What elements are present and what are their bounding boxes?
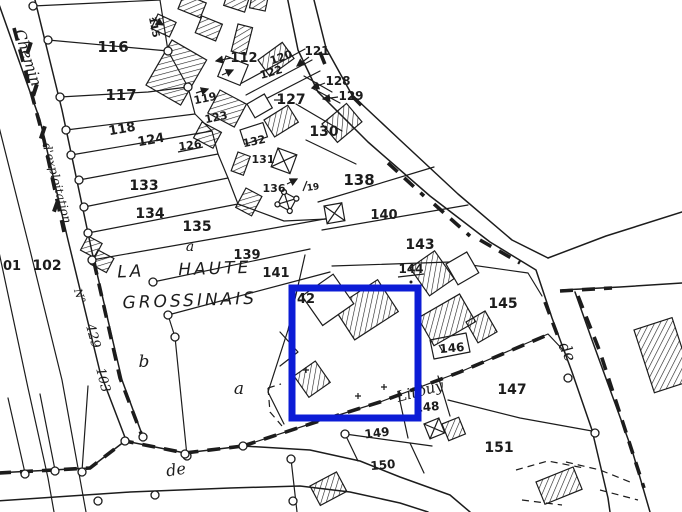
road-label-numero: N° xyxy=(71,286,88,305)
parcel-label-133: 133 xyxy=(129,178,158,194)
zone-letter-b: b xyxy=(139,352,150,372)
parcel-label-129: 129 xyxy=(338,89,363,103)
parcel-label-146: 146 xyxy=(439,340,465,356)
road-label-de-south: de xyxy=(165,459,187,481)
parcel-label-112: 112 xyxy=(230,51,257,66)
parcel-label-151: 151 xyxy=(484,440,513,456)
road-label-de-east: de xyxy=(555,339,581,365)
boundary-markers xyxy=(21,2,599,505)
place-name: LA HAUTE GROSSINAIS xyxy=(117,258,257,314)
parcel-label-136: 136 xyxy=(263,182,286,195)
road-label-429: 429 xyxy=(82,321,104,350)
parcel-label-126: 126 xyxy=(178,137,203,153)
parcel-label-135: 135 xyxy=(182,219,211,235)
parcel-label-102: 102 xyxy=(32,258,61,274)
parcel-label-118: 118 xyxy=(107,120,136,139)
parcel-label-138: 138 xyxy=(343,171,374,189)
parcel-label-116: 116 xyxy=(97,38,128,56)
parcel-label-143: 143 xyxy=(405,237,434,253)
zone-letter-a: a xyxy=(234,379,244,399)
place-name-la: LA xyxy=(117,262,145,283)
parcel-label-142: 42 xyxy=(297,292,315,307)
parcel-label-19: 19 xyxy=(306,182,320,194)
parcel-label-128: 128 xyxy=(325,74,350,88)
parcel-label-145: 145 xyxy=(488,296,517,312)
parcel-label-117: 117 xyxy=(105,86,136,104)
parcel-label-144: 144 xyxy=(398,262,423,276)
parcel-label-121: 121 xyxy=(304,44,329,58)
parcel-label-149: 149 xyxy=(364,425,391,442)
parcel-label-147: 147 xyxy=(497,382,526,398)
parcel-label-131: 131 xyxy=(252,153,275,166)
parcel-boundaries xyxy=(0,0,592,512)
parcel-label-127: 127 xyxy=(276,92,305,108)
cadastral-map-sheet: 01 102 115 116 117 118 124 126 119 123 1… xyxy=(0,0,682,512)
parcel-label-150: 150 xyxy=(370,457,396,473)
parcel-label-134: 134 xyxy=(135,206,164,222)
place-name-grossinais: GROSSINAIS xyxy=(122,289,257,314)
road-label-103: 103 xyxy=(92,366,113,394)
parcel-label-141: 141 xyxy=(262,266,289,281)
zone-letter-a-135: a xyxy=(186,239,194,255)
parcel-label-123: 123 xyxy=(204,109,229,126)
road-label-chemin: Chemin xyxy=(10,27,45,88)
parcel-label-101: 01 xyxy=(3,259,21,274)
parcel-144-dot xyxy=(410,281,413,284)
parcel-label-130: 130 xyxy=(309,124,338,140)
parcel-label-140: 140 xyxy=(370,208,397,223)
place-name-haute: HAUTE xyxy=(178,258,252,281)
parcel-label-124: 124 xyxy=(136,131,165,150)
cadastral-map: 01 102 115 116 117 118 124 126 119 123 1… xyxy=(0,0,682,512)
